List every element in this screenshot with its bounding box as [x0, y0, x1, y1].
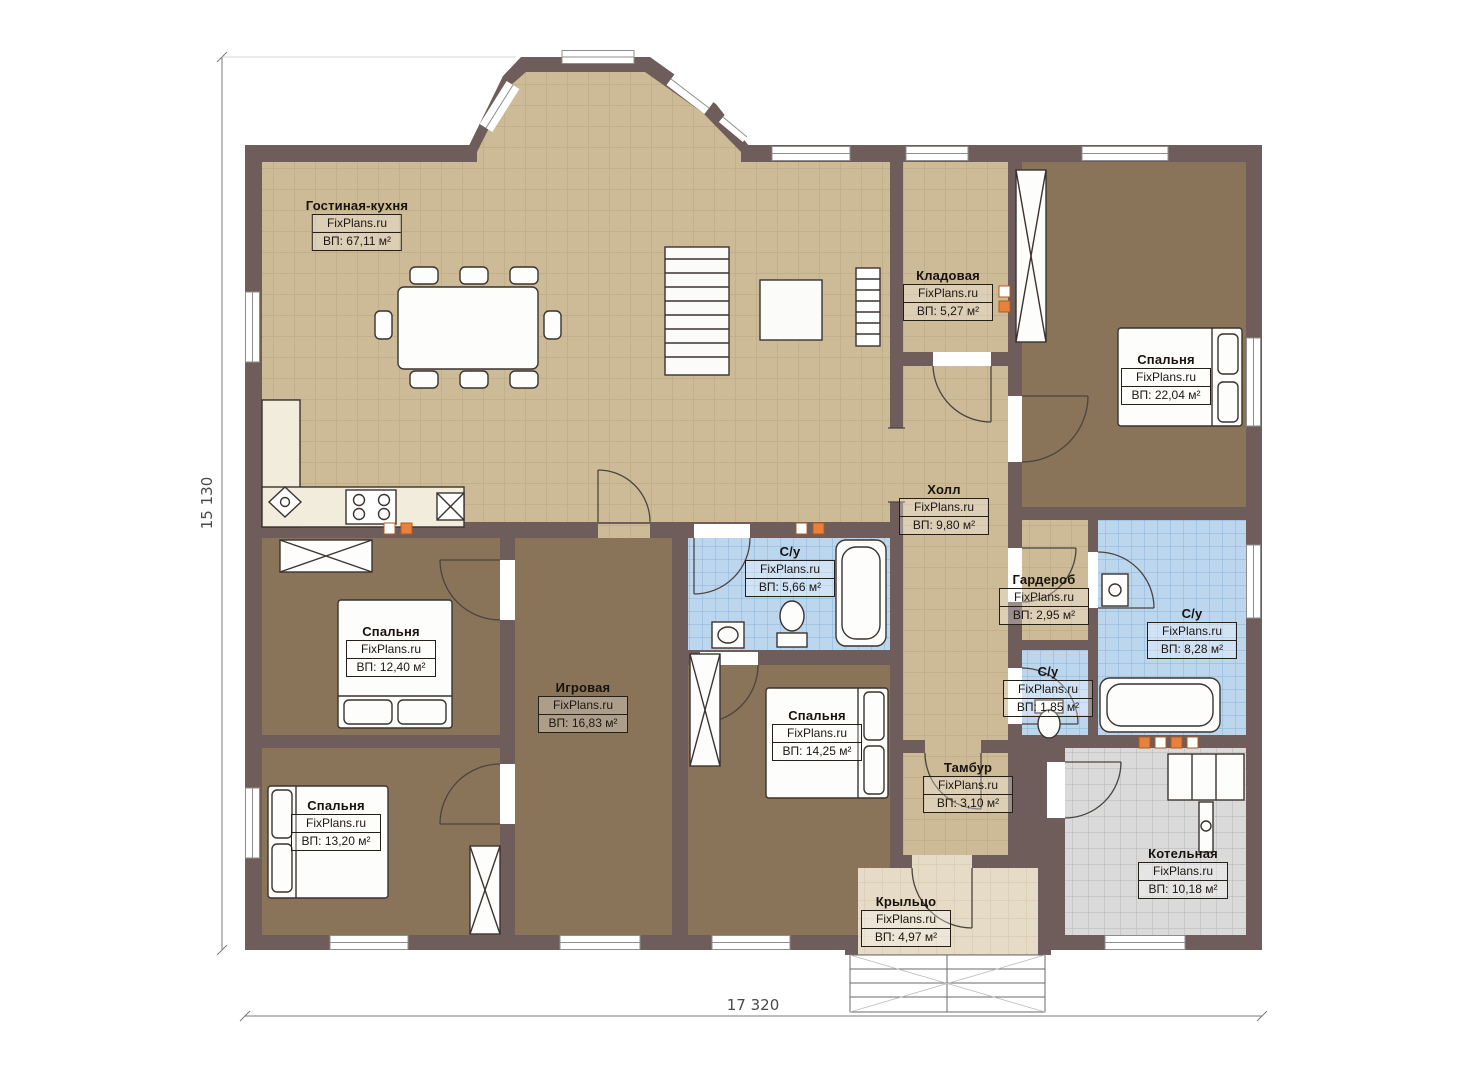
room-name: Кладовая	[903, 268, 993, 283]
room-info-box: FixPlans.ru ВП: 16,83 м²	[538, 696, 628, 733]
window	[906, 147, 968, 161]
room-info-box: FixPlans.ru ВП: 1,85 м²	[1003, 680, 1093, 717]
room-igrovaya-floor	[515, 538, 672, 935]
window	[712, 936, 790, 950]
room-info-box: FixPlans.ru ВП: 5,66 м²	[745, 560, 835, 597]
room-area-label: ВП: 9,80 м²	[900, 517, 988, 534]
room-info-box: FixPlans.ru ВП: 9,80 м²	[899, 498, 989, 535]
bay-window-floor	[477, 72, 741, 164]
radiator	[856, 268, 880, 346]
room-area-label: ВП: 5,66 м²	[746, 579, 834, 596]
room-info-box: FixPlans.ru ВП: 67,11 м²	[312, 214, 402, 251]
room-info-box: FixPlans.ru ВП: 2,95 м²	[999, 588, 1089, 625]
porch-steps	[850, 955, 1045, 1012]
brand-label: FixPlans.ru	[746, 561, 834, 579]
dimension-width-label: 17 320	[727, 996, 780, 1014]
room-label-garderob: Гардероб FixPlans.ru ВП: 2,95 м²	[999, 572, 1089, 625]
room-label-su-small: С/у FixPlans.ru ВП: 1,85 м²	[1003, 664, 1093, 717]
stove	[346, 490, 396, 524]
room-name: С/у	[1003, 664, 1093, 679]
brand-label: FixPlans.ru	[313, 215, 401, 233]
room-info-box: FixPlans.ru ВП: 10,18 м²	[1138, 862, 1228, 899]
room-label-bedroom-mid: Спальня FixPlans.ru ВП: 14,25 м²	[772, 708, 862, 761]
room-name: Холл	[899, 482, 989, 497]
room-label-kladovaya: Кладовая FixPlans.ru ВП: 5,27 м²	[903, 268, 993, 321]
room-info-box: FixPlans.ru ВП: 14,25 м²	[772, 724, 862, 761]
room-name: Спальня	[291, 798, 381, 813]
brand-label: FixPlans.ru	[539, 697, 627, 715]
room-name: Гардероб	[999, 572, 1089, 587]
room-area-label: ВП: 4,97 м²	[862, 929, 950, 946]
room-area-label: ВП: 5,27 м²	[904, 303, 992, 320]
window	[772, 147, 850, 161]
window	[1082, 147, 1168, 161]
room-area-label: ВП: 1,85 м²	[1004, 699, 1092, 716]
brand-label: FixPlans.ru	[1122, 369, 1210, 387]
room-name: Котельная	[1138, 846, 1228, 861]
brand-label: FixPlans.ru	[347, 641, 435, 659]
room-name: Спальня	[346, 624, 436, 639]
dimension-height-label: 15 130	[198, 477, 216, 530]
room-hall-floor	[903, 366, 1008, 740]
sink-su-top	[712, 622, 744, 648]
room-name: С/у	[745, 544, 835, 559]
room-name: Спальня	[1121, 352, 1211, 367]
room-area-label: ВП: 3,10 м²	[924, 795, 1012, 812]
room-name: Тамбур	[923, 760, 1013, 775]
room-area-label: ВП: 22,04 м²	[1122, 387, 1210, 404]
room-area-label: ВП: 10,18 м²	[1139, 881, 1227, 898]
brand-label: FixPlans.ru	[924, 777, 1012, 795]
window	[560, 936, 640, 950]
room-info-box: FixPlans.ru ВП: 3,10 м²	[923, 776, 1013, 813]
room-label-bedroom-bl: Спальня FixPlans.ru ВП: 13,20 м²	[291, 798, 381, 851]
brand-label: FixPlans.ru	[900, 499, 988, 517]
room-label-su-right: С/у FixPlans.ru ВП: 8,28 м²	[1147, 606, 1237, 659]
window	[246, 788, 260, 858]
window	[1105, 936, 1185, 950]
wardrobe-bedroom-bl	[470, 846, 500, 934]
room-name: Спальня	[772, 708, 862, 723]
wardrobe-bedroom-tr	[1016, 170, 1046, 342]
fireplace-unit	[665, 247, 729, 375]
room-label-su-top: С/у FixPlans.ru ВП: 5,66 м²	[745, 544, 835, 597]
toilet-su-top	[777, 601, 807, 647]
room-area-label: ВП: 67,11 м²	[313, 233, 401, 250]
room-info-box: FixPlans.ru ВП: 5,27 м²	[903, 284, 993, 321]
room-label-bedroom-left: Спальня FixPlans.ru ВП: 12,40 м²	[346, 624, 436, 677]
room-area-label: ВП: 8,28 м²	[1148, 641, 1236, 658]
brand-label: FixPlans.ru	[904, 285, 992, 303]
side-table	[760, 280, 822, 340]
sink-su-right	[1102, 574, 1128, 606]
room-info-box: FixPlans.ru ВП: 13,20 м²	[291, 814, 381, 851]
room-label-hall: Холл FixPlans.ru ВП: 9,80 м²	[899, 482, 989, 535]
window	[246, 292, 260, 362]
room-kladovaya-floor	[903, 162, 1008, 352]
room-name: Крыльцо	[861, 894, 951, 909]
room-area-label: ВП: 13,20 м²	[292, 833, 380, 850]
room-label-living: Гостиная-кухня FixPlans.ru ВП: 67,11 м²	[306, 198, 408, 251]
room-label-bedroom-tr: Спальня FixPlans.ru ВП: 22,04 м²	[1121, 352, 1211, 405]
appliance-box	[437, 493, 464, 520]
room-name: С/у	[1147, 606, 1237, 621]
bathtub-su-right	[1100, 678, 1220, 732]
brand-label: FixPlans.ru	[1139, 863, 1227, 881]
floor-plan: 15 130 17 320 Гостиная-кухня FixPlans.ru…	[0, 0, 1473, 1080]
floor-plan-drawing	[0, 0, 1473, 1080]
window	[1247, 338, 1261, 426]
brand-label: FixPlans.ru	[773, 725, 861, 743]
room-label-kotelnaya: Котельная FixPlans.ru ВП: 10,18 м²	[1138, 846, 1228, 899]
window	[1247, 545, 1261, 618]
wardrobe-bedroom-left	[280, 540, 372, 572]
room-info-box: FixPlans.ru ВП: 8,28 м²	[1147, 622, 1237, 659]
room-area-label: ВП: 14,25 м²	[773, 743, 861, 760]
room-area-label: ВП: 16,83 м²	[539, 715, 627, 732]
brand-label: FixPlans.ru	[1148, 623, 1236, 641]
room-area-label: ВП: 12,40 м²	[347, 659, 435, 676]
room-name: Гостиная-кухня	[306, 198, 408, 213]
room-info-box: FixPlans.ru ВП: 12,40 м²	[346, 640, 436, 677]
room-label-tambur: Тамбур FixPlans.ru ВП: 3,10 м²	[923, 760, 1013, 813]
brand-label: FixPlans.ru	[1000, 589, 1088, 607]
bay-window-top	[562, 51, 634, 64]
brand-label: FixPlans.ru	[862, 911, 950, 929]
window	[330, 936, 408, 950]
wardrobe-bedroom-mid	[690, 654, 720, 766]
brand-label: FixPlans.ru	[1004, 681, 1092, 699]
brand-label: FixPlans.ru	[292, 815, 380, 833]
room-label-kryltso: Крыльцо FixPlans.ru ВП: 4,97 м²	[861, 894, 951, 947]
room-name: Игровая	[538, 680, 628, 695]
room-info-box: FixPlans.ru ВП: 22,04 м²	[1121, 368, 1211, 405]
room-label-igrovaya: Игровая FixPlans.ru ВП: 16,83 м²	[538, 680, 628, 733]
bathtub-su-top	[836, 540, 886, 646]
room-area-label: ВП: 2,95 м²	[1000, 607, 1088, 624]
room-info-box: FixPlans.ru ВП: 4,97 м²	[861, 910, 951, 947]
